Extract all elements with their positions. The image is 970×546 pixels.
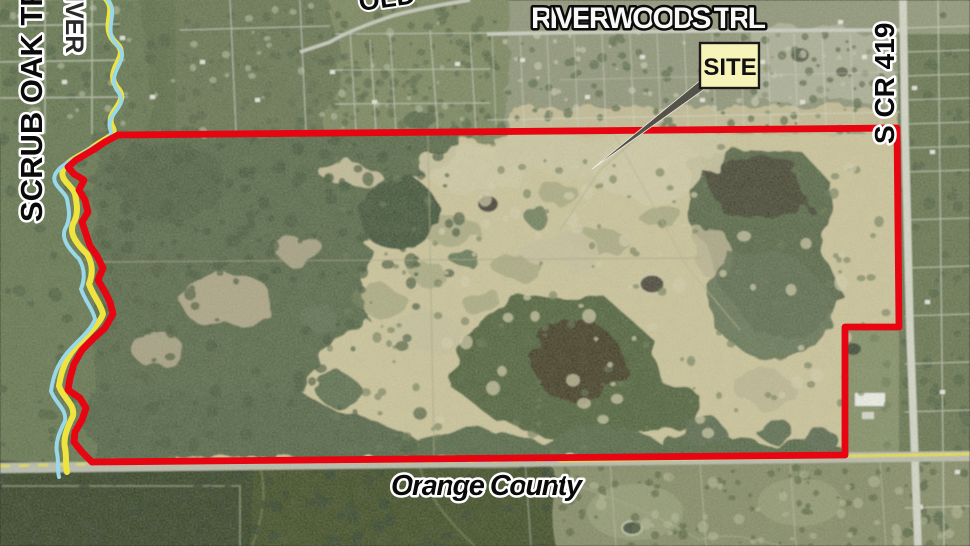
svg-text:SITE: SITE <box>703 54 756 81</box>
svg-text:SCRUB OAK TRL: SCRUB OAK TRL <box>14 0 49 222</box>
svg-text:RIVER: RIVER <box>60 0 88 53</box>
svg-text:RIVERWOODS TRL: RIVERWOODS TRL <box>531 2 766 35</box>
svg-text:Orange County: Orange County <box>391 470 584 502</box>
svg-text:S CR 419: S CR 419 <box>869 23 900 144</box>
